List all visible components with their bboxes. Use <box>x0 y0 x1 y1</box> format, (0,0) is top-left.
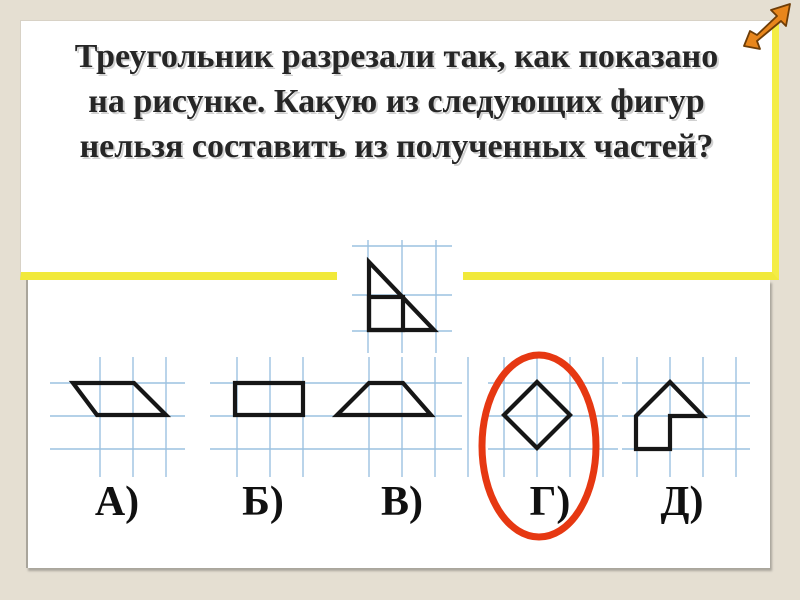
option-label-v: В) <box>362 478 442 526</box>
option-label-g: Г) <box>510 478 590 526</box>
question-line-3: нельзя составить из полученных частей? <box>21 124 772 169</box>
option-label-d: Д) <box>642 478 722 526</box>
option-label-a: А) <box>77 478 157 526</box>
option-label-b: Б) <box>223 478 303 526</box>
question-text: Треугольник разрезали так, как показано … <box>21 34 772 169</box>
question-line-1: Треугольник разрезали так, как показано <box>21 34 772 79</box>
slide: Треугольник разрезали так, как показано … <box>0 0 800 600</box>
question-line-2: на рисунке. Какую из следующих фигур <box>21 79 772 124</box>
question-panel: Треугольник разрезали так, как показано … <box>20 20 779 280</box>
